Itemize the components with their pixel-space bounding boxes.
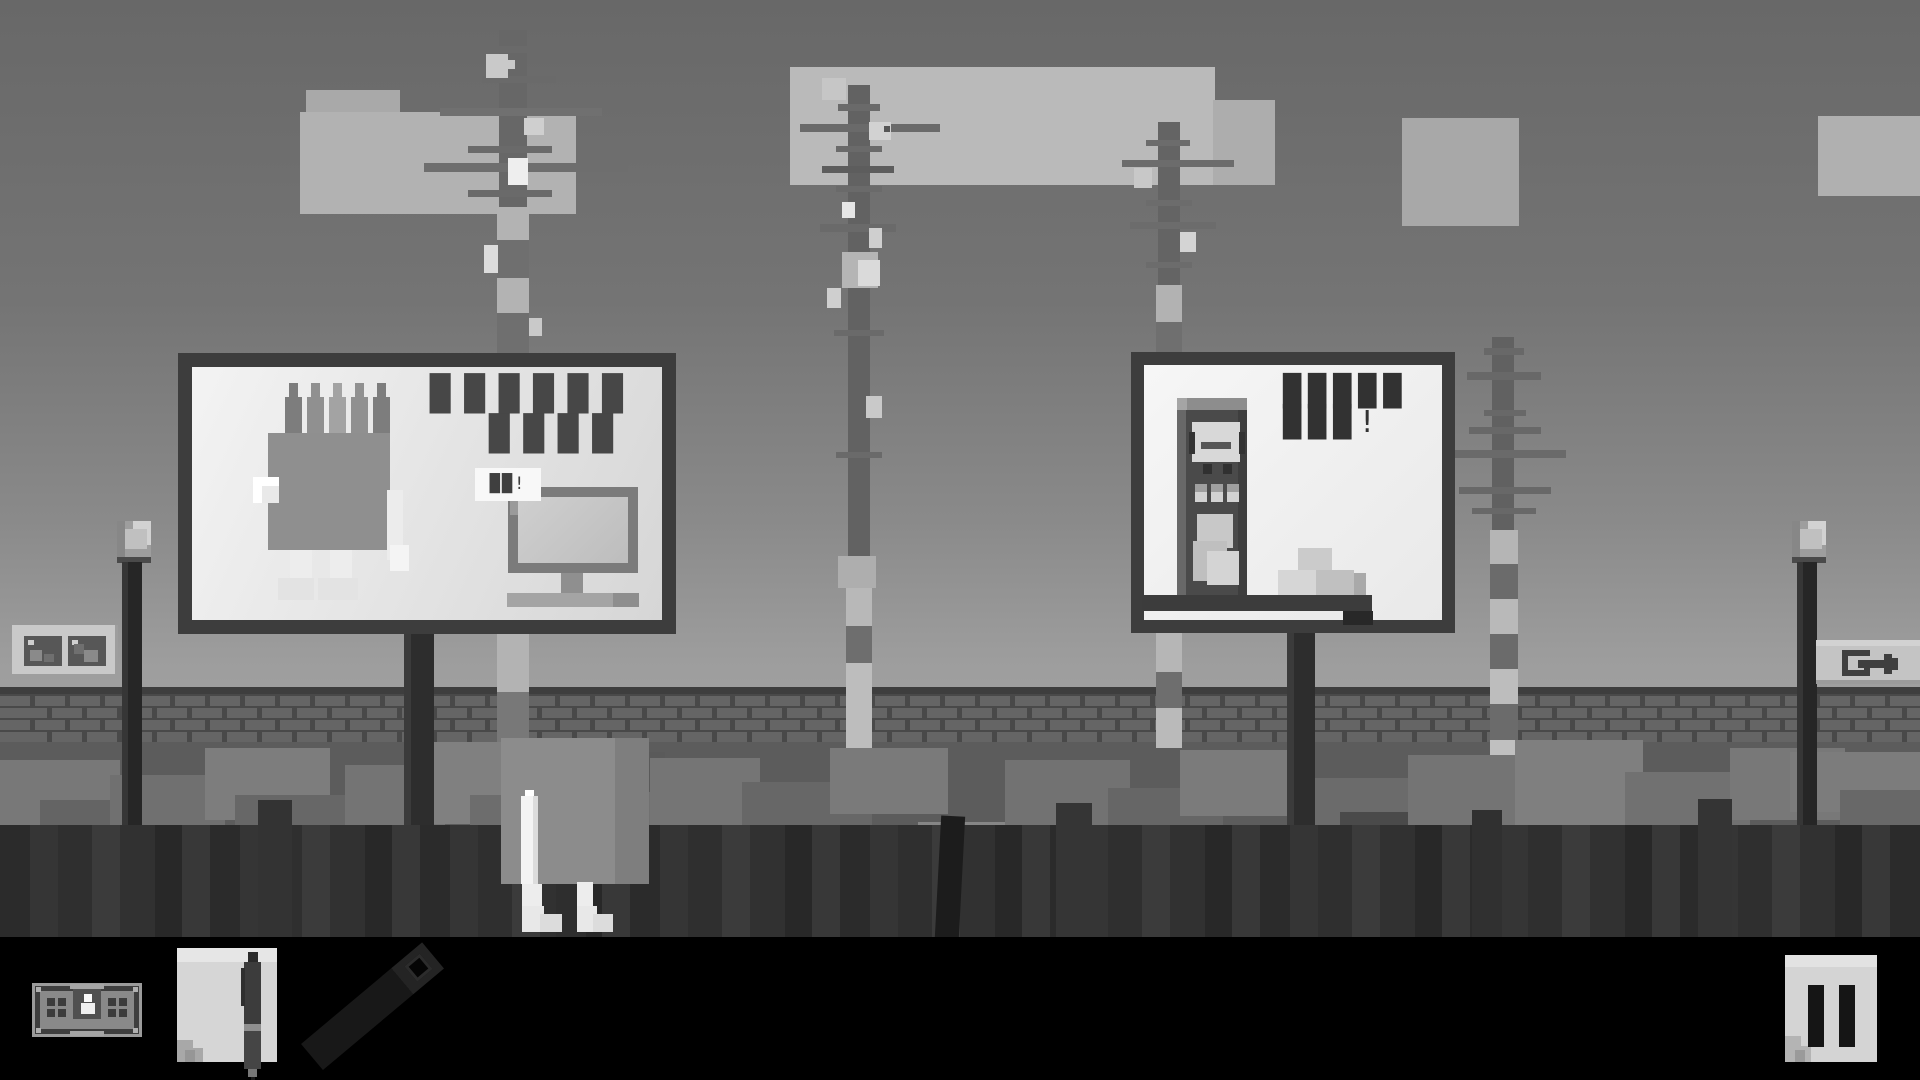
stripe-segment — [1490, 530, 1518, 564]
sign-edge — [1816, 680, 1920, 684]
crossbar — [836, 146, 882, 152]
billboard-headline-line1: ██████ — [430, 377, 637, 411]
stripe-segment — [497, 313, 529, 353]
banknote-dot — [108, 1009, 116, 1017]
chip-pin — [329, 397, 346, 433]
chip-pin — [355, 383, 364, 397]
stripe-segment — [1490, 669, 1518, 704]
vending-body — [1177, 410, 1186, 596]
vending-display-slot — [1201, 442, 1231, 449]
chip-pin — [285, 397, 302, 433]
notepad-fold — [185, 1050, 195, 1062]
waving-hand — [262, 486, 279, 503]
cloud — [1818, 116, 1920, 196]
framed-pictures-icon — [30, 650, 42, 661]
crossbar — [440, 108, 602, 116]
banknote-icon — [70, 1031, 104, 1036]
chip-pin — [289, 383, 298, 397]
vending-button — [1195, 484, 1207, 502]
pause-button-top — [1785, 955, 1877, 967]
chip-pin — [377, 383, 386, 397]
stripe-segment — [1156, 322, 1182, 352]
crossbar — [822, 166, 894, 173]
lamp-head — [117, 521, 125, 561]
crossbar — [1146, 140, 1190, 146]
vending-cap — [1177, 398, 1247, 410]
banknote-dot — [47, 1009, 55, 1017]
pause-button[interactable] — [1785, 955, 1877, 1062]
billboard-right[interactable]: █████ ███! — [1131, 352, 1455, 633]
crossbar — [1146, 262, 1192, 268]
antenna-box — [508, 60, 515, 69]
crossbar — [838, 104, 880, 111]
antenna-box — [484, 245, 498, 273]
antenna-box — [866, 396, 882, 418]
crossbar — [836, 186, 882, 192]
banknote-dot — [119, 1009, 127, 1017]
antenna-box — [822, 78, 846, 100]
placard-text: ██! — [490, 474, 527, 494]
fence-plank — [258, 800, 292, 937]
ruler-hole — [404, 954, 432, 982]
framed-pictures-icon — [84, 650, 98, 662]
crossbar — [472, 46, 546, 53]
crossbar — [1469, 427, 1541, 434]
crossbar — [1122, 160, 1234, 167]
rubble-block — [1515, 740, 1643, 828]
vending-display-frame — [1189, 432, 1195, 454]
pen-icon — [248, 1069, 257, 1077]
crossbar — [1467, 372, 1541, 380]
antenna-box — [869, 228, 882, 248]
fence-plank — [1472, 810, 1502, 937]
pen-icon — [244, 962, 261, 1024]
inventory-bar — [0, 937, 1920, 1080]
antenna-box — [858, 260, 880, 286]
stripe-segment — [497, 240, 529, 278]
antenna-box — [838, 556, 876, 588]
stripe-segment — [1490, 564, 1518, 599]
stripe-segment — [497, 207, 529, 240]
antenna-box — [827, 288, 841, 308]
cloud — [1402, 118, 1519, 226]
player-foot — [540, 914, 562, 932]
pictures-sign[interactable] — [12, 625, 118, 677]
hiding-box — [615, 738, 649, 884]
sign-edge — [12, 674, 118, 677]
counter-shelf — [1343, 611, 1373, 625]
chip-pin — [307, 397, 324, 433]
chip-pin — [373, 397, 390, 433]
fence-plank — [1056, 803, 1092, 937]
crossbar — [1146, 200, 1192, 206]
billboard-headline-line2: ███! — [1283, 408, 1383, 438]
rubble-block — [830, 748, 948, 814]
banknote-portrait — [81, 1003, 95, 1014]
stripe-segment — [846, 663, 872, 750]
crossbar — [1459, 487, 1551, 494]
vending-display-foot — [1203, 464, 1212, 474]
crossbar — [1484, 410, 1526, 416]
chip-hand — [390, 545, 409, 571]
framed-pictures-icon — [44, 654, 54, 662]
antenna-box — [884, 126, 890, 132]
crossbar — [1484, 348, 1524, 355]
brick-wall — [0, 687, 1920, 742]
banknote-icon — [36, 1028, 41, 1033]
sign-edge — [115, 625, 118, 677]
lamp-head — [125, 529, 147, 549]
stripe-segment — [1490, 634, 1518, 669]
fence-plank — [1698, 799, 1732, 937]
stripe-segment — [1156, 672, 1182, 708]
banknote-icon — [36, 987, 41, 992]
stripe-segment — [1490, 599, 1518, 634]
stripe-segment — [1156, 633, 1182, 672]
billboard-headline-line1: █████ — [1283, 377, 1408, 407]
vending-cap — [1177, 398, 1187, 410]
box — [1298, 548, 1332, 572]
exit-icon — [1884, 654, 1892, 674]
pause-icon — [1839, 985, 1855, 1047]
banknote-dot — [119, 998, 127, 1006]
stripe-segment — [1490, 704, 1518, 740]
vending-button — [1211, 484, 1223, 502]
chip-pin — [351, 397, 368, 433]
chip-foot — [278, 578, 314, 600]
player-arm — [533, 796, 538, 884]
antenna-box — [508, 158, 528, 185]
billboard-left[interactable]: ██████ ████ ██! — [178, 353, 676, 634]
vending-button — [1227, 484, 1239, 502]
exit-sign[interactable] — [1816, 640, 1920, 684]
brick-row — [0, 706, 1920, 718]
banknote-item[interactable] — [32, 983, 142, 1037]
sign-edge — [1816, 640, 1920, 646]
pause-icon — [1808, 985, 1824, 1047]
stripe-segment — [1156, 708, 1182, 748]
placard: ██! — [475, 468, 541, 501]
pen-icon — [248, 952, 258, 962]
vending-display-foot — [1223, 464, 1232, 474]
chip-foot — [318, 578, 358, 600]
framed-pictures-icon — [74, 644, 84, 654]
billboard-headline-line2: ████ — [489, 417, 627, 451]
lamp-head — [1792, 521, 1800, 561]
brick-row — [0, 718, 1920, 730]
stripe-segment — [846, 588, 872, 626]
chip-pin — [333, 383, 342, 397]
cloud — [306, 90, 400, 114]
banknote-dot — [108, 998, 116, 1006]
box — [1278, 570, 1316, 595]
chip-pin — [311, 383, 320, 397]
pause-fold — [1795, 1050, 1805, 1062]
mast — [848, 85, 870, 590]
stripe-segment — [497, 634, 529, 692]
pen-icon — [244, 1024, 261, 1031]
notepad-item[interactable] — [177, 948, 277, 1062]
lamp-head — [1800, 529, 1822, 549]
rubble-block — [1180, 750, 1290, 816]
banknote-dot — [47, 998, 55, 1006]
game-scene: ██████ ████ ██! — [0, 0, 1920, 1080]
monitor-neck — [561, 573, 583, 593]
brick-row — [0, 694, 1920, 706]
crossbar — [1452, 450, 1566, 458]
crossbar — [468, 190, 552, 197]
crossbar — [834, 330, 884, 336]
monitor-screen — [518, 497, 628, 563]
stripe-segment — [846, 626, 872, 663]
banknote-icon — [133, 987, 138, 992]
box — [1316, 570, 1354, 595]
banknote-portrait — [84, 994, 92, 1002]
crossbar — [468, 146, 552, 153]
player-foot — [593, 914, 613, 932]
vending-package — [1207, 551, 1239, 585]
rubble-block — [1408, 755, 1526, 827]
antenna-box — [524, 118, 544, 135]
mast — [1158, 122, 1180, 302]
chip-body — [268, 433, 390, 550]
antenna-box — [529, 318, 542, 336]
cloud — [1213, 100, 1275, 185]
stripe-segment — [497, 692, 529, 742]
monitor-base — [613, 593, 639, 607]
banknote-dot — [58, 1009, 66, 1017]
pen-icon — [244, 1031, 261, 1069]
counter-shelf — [1142, 595, 1372, 611]
pen-icon — [241, 968, 245, 1006]
framed-pictures-icon — [28, 640, 34, 645]
stripe-segment — [497, 278, 529, 313]
placard-stick — [510, 499, 518, 515]
box — [1354, 573, 1366, 595]
antenna-box — [486, 54, 508, 78]
banknote-icon — [133, 1028, 138, 1033]
crossbar — [820, 224, 896, 232]
exit-icon — [1892, 658, 1898, 670]
mast — [1492, 337, 1514, 532]
antenna-box — [1134, 168, 1152, 188]
stripe-segment — [1156, 285, 1182, 322]
wall-cap — [0, 687, 1920, 694]
antenna-box — [1180, 232, 1196, 252]
banknote-dot — [58, 998, 66, 1006]
antenna-box — [842, 202, 855, 218]
crossbar — [1472, 508, 1536, 514]
crossbar — [836, 452, 882, 458]
crossbar — [1130, 222, 1216, 229]
vending-display-frame — [1239, 432, 1245, 454]
